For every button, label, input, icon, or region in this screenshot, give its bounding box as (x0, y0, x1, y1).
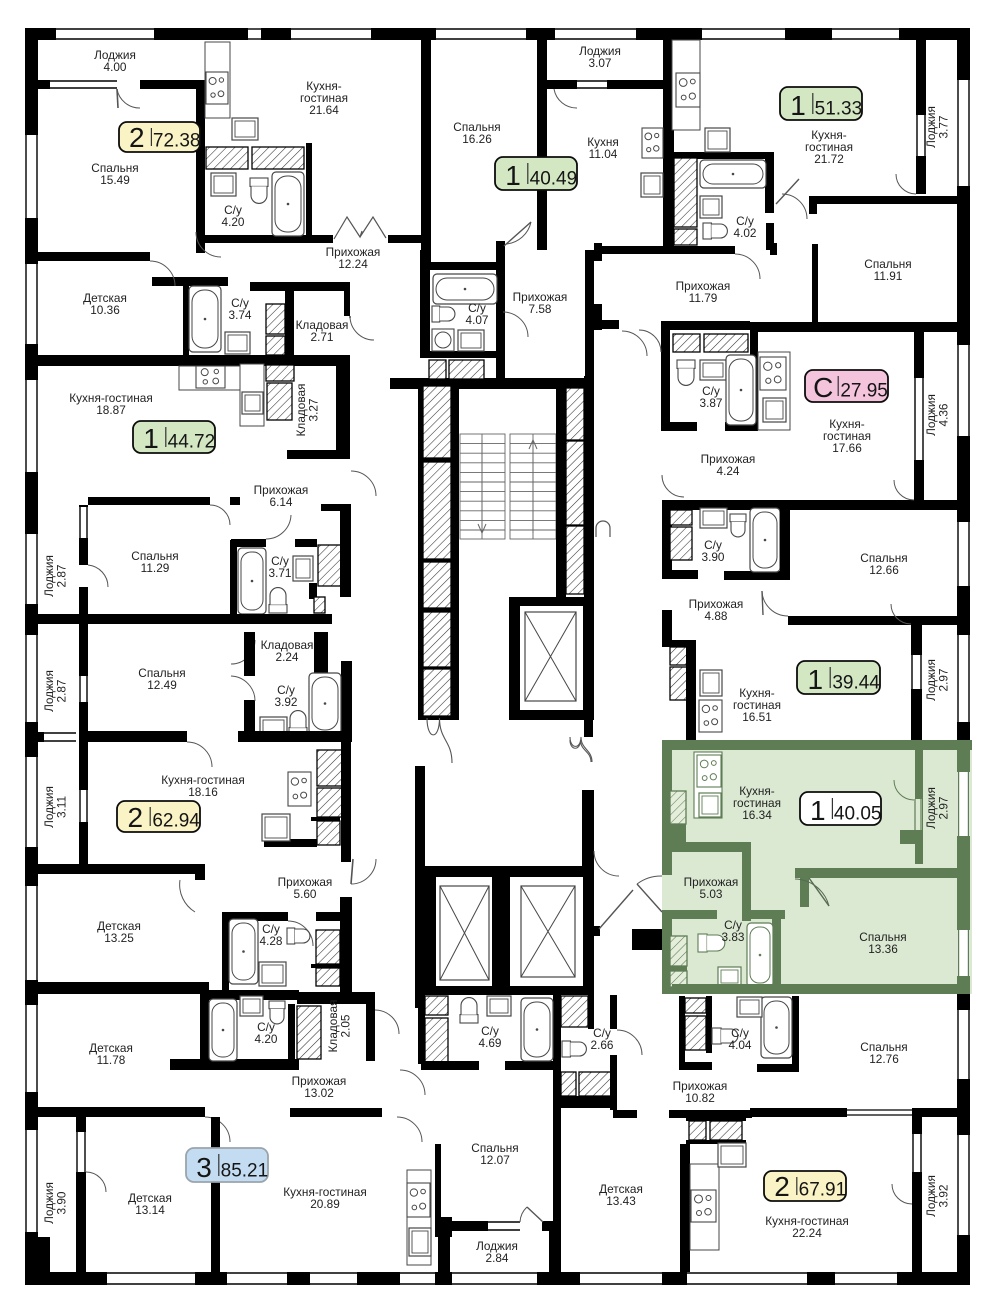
svg-text:12.07: 12.07 (480, 1153, 510, 1167)
svg-text:11.78: 11.78 (97, 1053, 126, 1067)
svg-text:22.24: 22.24 (792, 1226, 822, 1240)
svg-text:1: 1 (143, 423, 159, 454)
svg-text:13.14: 13.14 (135, 1203, 165, 1217)
svg-text:4.00: 4.00 (104, 60, 127, 74)
svg-text:12.49: 12.49 (147, 678, 177, 692)
svg-text:27.95: 27.95 (840, 381, 888, 402)
svg-text:2: 2 (127, 802, 143, 833)
svg-text:12.24: 12.24 (338, 257, 368, 271)
svg-text:7.58: 7.58 (529, 302, 552, 316)
svg-text:40.49: 40.49 (530, 169, 578, 190)
svg-text:2.66: 2.66 (591, 1038, 614, 1052)
svg-text:1: 1 (810, 795, 826, 826)
svg-text:11.91: 11.91 (874, 269, 903, 283)
svg-text:4.88: 4.88 (705, 609, 728, 623)
svg-text:2.84: 2.84 (486, 1251, 509, 1265)
svg-text:1: 1 (790, 90, 806, 121)
svg-text:3.90: 3.90 (702, 550, 725, 564)
svg-text:3.92: 3.92 (275, 695, 298, 709)
svg-text:3.71: 3.71 (269, 566, 292, 580)
svg-text:20.89: 20.89 (310, 1197, 340, 1211)
svg-text:2.97: 2.97 (936, 797, 950, 820)
svg-text:3.07: 3.07 (589, 56, 612, 70)
svg-text:3.83: 3.83 (722, 930, 745, 944)
svg-text:10.36: 10.36 (90, 303, 120, 317)
svg-text:2: 2 (774, 1171, 790, 1202)
svg-text:1: 1 (807, 664, 823, 695)
svg-text:40.05: 40.05 (834, 804, 882, 825)
svg-text:18.16: 18.16 (188, 785, 218, 799)
svg-text:3.92: 3.92 (936, 1185, 950, 1208)
svg-text:3.87: 3.87 (700, 396, 723, 410)
svg-text:16.26: 16.26 (462, 132, 492, 146)
svg-text:4.04: 4.04 (729, 1038, 752, 1052)
svg-text:2.87: 2.87 (54, 565, 68, 588)
svg-text:21.72: 21.72 (814, 152, 844, 166)
svg-text:16.51: 16.51 (742, 710, 772, 724)
svg-text:3.90: 3.90 (54, 1191, 68, 1214)
svg-text:3.11: 3.11 (54, 796, 68, 818)
svg-text:2.71: 2.71 (311, 330, 334, 344)
svg-text:51.33: 51.33 (815, 99, 863, 120)
svg-text:11.04: 11.04 (589, 147, 618, 161)
svg-text:4.02: 4.02 (734, 226, 757, 240)
svg-text:17.66: 17.66 (832, 441, 862, 455)
svg-text:13.02: 13.02 (304, 1086, 334, 1100)
svg-text:13.25: 13.25 (104, 931, 134, 945)
svg-text:85.21: 85.21 (221, 1161, 269, 1182)
svg-text:12.76: 12.76 (869, 1052, 899, 1066)
svg-text:39.44: 39.44 (832, 673, 880, 694)
svg-text:2.97: 2.97 (936, 669, 950, 692)
svg-text:3: 3 (196, 1152, 212, 1183)
svg-text:72.38: 72.38 (153, 131, 201, 152)
svg-text:4.20: 4.20 (222, 215, 245, 229)
svg-text:44.72: 44.72 (168, 432, 216, 453)
svg-text:4.36: 4.36 (936, 403, 950, 426)
svg-text:4.07: 4.07 (466, 313, 489, 327)
svg-text:21.64: 21.64 (309, 103, 339, 117)
svg-text:3.77: 3.77 (936, 116, 950, 139)
svg-text:13.36: 13.36 (868, 942, 898, 956)
svg-text:2.05: 2.05 (338, 1014, 352, 1037)
svg-text:62.94: 62.94 (152, 811, 200, 832)
svg-text:13.43: 13.43 (606, 1194, 636, 1208)
svg-text:3.27: 3.27 (306, 399, 320, 422)
svg-text:18.87: 18.87 (96, 403, 126, 417)
svg-text:16.34: 16.34 (742, 808, 772, 822)
svg-text:4.20: 4.20 (255, 1032, 278, 1046)
svg-text:2: 2 (129, 122, 145, 153)
svg-text:2.24: 2.24 (276, 650, 299, 664)
svg-text:6.14: 6.14 (270, 495, 293, 509)
svg-text:12.66: 12.66 (869, 563, 899, 577)
svg-text:11.79: 11.79 (689, 291, 718, 305)
svg-text:5.60: 5.60 (294, 887, 317, 901)
svg-text:2.87: 2.87 (54, 680, 68, 703)
svg-text:67.91: 67.91 (799, 1180, 847, 1201)
svg-text:15.49: 15.49 (100, 173, 130, 187)
svg-text:10.82: 10.82 (685, 1091, 715, 1105)
svg-text:4.69: 4.69 (479, 1036, 502, 1050)
svg-text:С: С (813, 372, 833, 403)
svg-text:11.29: 11.29 (141, 561, 170, 575)
svg-text:4.28: 4.28 (260, 934, 283, 948)
svg-text:4.24: 4.24 (717, 464, 740, 478)
svg-text:3.74: 3.74 (229, 308, 252, 322)
svg-text:1: 1 (505, 160, 521, 191)
svg-text:5.03: 5.03 (700, 887, 723, 901)
